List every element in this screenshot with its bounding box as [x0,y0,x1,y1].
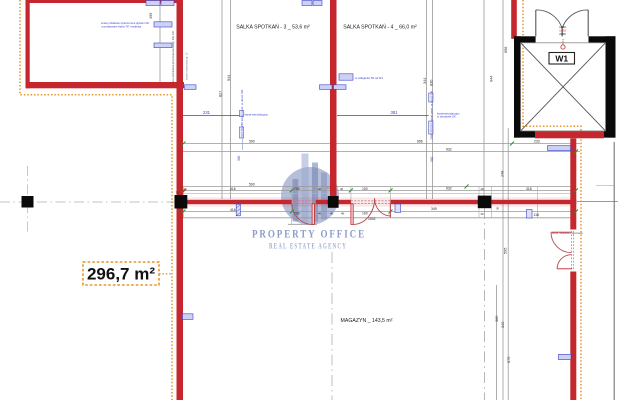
svg-text:w odległości 50 od W1: w odległości 50 od W1 [355,76,383,80]
svg-text:REAL ESTATE AGENCY: REAL ESTATE AGENCY [269,242,347,251]
svg-text:36: 36 [496,206,500,210]
svg-text:12,62: 12,62 [327,185,335,189]
svg-text:830: 830 [429,80,433,86]
svg-text:416: 416 [230,187,236,191]
svg-text:360: 360 [495,316,499,322]
svg-text:46: 46 [318,187,322,191]
svg-text:932: 932 [446,187,452,191]
svg-text:944: 944 [490,76,494,82]
svg-text:2x90: 2x90 [559,32,566,36]
svg-text:696: 696 [417,139,423,143]
svg-text:46: 46 [341,211,345,215]
svg-text:296,7 m²: 296,7 m² [87,265,155,284]
svg-text:349: 349 [431,207,437,211]
svg-text:700: 700 [294,211,300,215]
svg-text:46: 46 [318,211,322,215]
svg-text:40: 40 [481,187,485,191]
svg-text:ściana oddzielenia przeciwpoża: ściana oddzielenia przeciwpożarowego REI… [171,30,175,86]
svg-text:827: 827 [219,91,223,97]
svg-text:w obudowie GK: w obudowie GK [437,115,456,119]
svg-text:1532: 1532 [368,217,376,221]
svg-text:500: 500 [249,183,255,187]
svg-text:416: 416 [230,208,236,212]
svg-text:698: 698 [504,47,508,53]
svg-text:233: 233 [534,140,540,144]
svg-text:W1: W1 [555,53,568,63]
svg-text:70: 70 [176,190,180,194]
svg-text:40: 40 [481,212,485,216]
svg-text:500: 500 [249,139,255,143]
svg-text:318: 318 [526,187,532,191]
svg-text:499: 499 [149,13,153,19]
svg-text:381: 381 [391,110,399,115]
svg-text:595: 595 [504,248,508,254]
svg-text:248: 248 [501,171,505,177]
svg-text:340: 340 [501,322,505,328]
svg-text:231: 231 [203,110,211,115]
svg-text:kanał wentylacyjny: kanał wentylacyjny [245,112,269,116]
svg-text:MAGAZYN _ 143,5 m²: MAGAZYN _ 143,5 m² [341,318,393,324]
svg-text:SALKA SPOTKAŃ - 4 _ 66,0 m²: SALKA SPOTKAŃ - 4 _ 66,0 m² [343,23,417,30]
svg-text:PROPERTY OFFICE: PROPERTY OFFICE [252,226,366,240]
svg-text:340: 340 [237,155,241,161]
svg-text:ściana murowana gr. 12: ściana murowana gr. 12 [185,52,189,80]
svg-text:SALKA SPOTKAŃ - 3 _ 53,6 m²: SALKA SPOTKAŃ - 3 _ 53,6 m² [236,23,310,30]
svg-text:340: 340 [430,156,434,162]
svg-text:100: 100 [362,211,368,215]
svg-text:obud. ślusarka częściowa: obud. ślusarka częściowa [552,231,583,235]
svg-text:118: 118 [534,213,540,217]
svg-text:675: 675 [507,357,511,363]
svg-text:100: 100 [362,187,368,191]
svg-text:700: 700 [294,187,300,191]
svg-text:344: 344 [423,78,427,84]
svg-text:932: 932 [446,147,452,151]
svg-text:i pomalowane farbą "W" mediowa: i pomalowane farbą "W" mediowa [101,24,142,28]
svg-text:944: 944 [227,75,231,81]
svg-text:40: 40 [330,211,334,215]
svg-text:40: 40 [340,187,344,191]
